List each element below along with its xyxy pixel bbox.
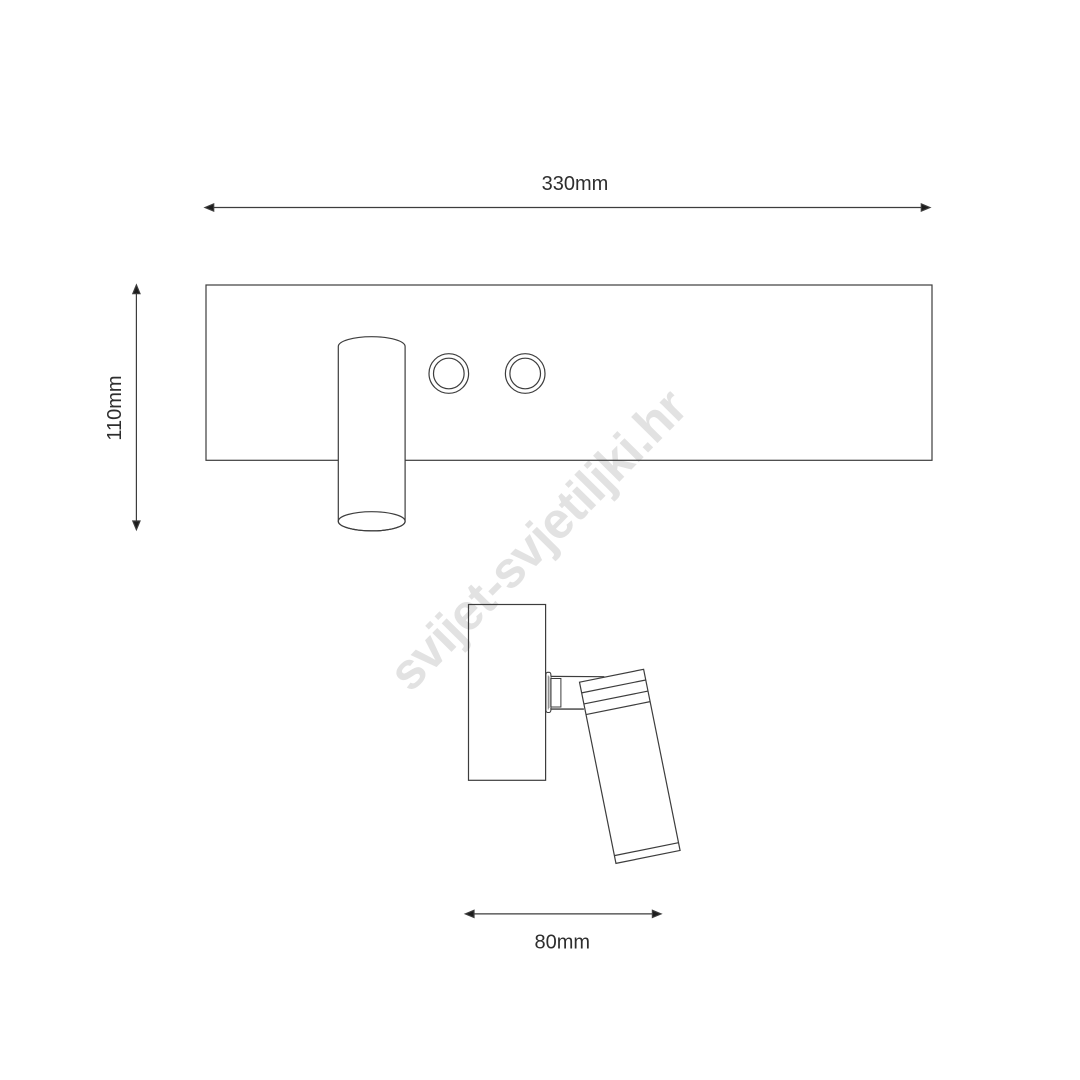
svg-text:110mm: 110mm bbox=[104, 375, 126, 440]
svg-text:330mm: 330mm bbox=[542, 173, 609, 195]
svg-text:80mm: 80mm bbox=[535, 932, 591, 954]
